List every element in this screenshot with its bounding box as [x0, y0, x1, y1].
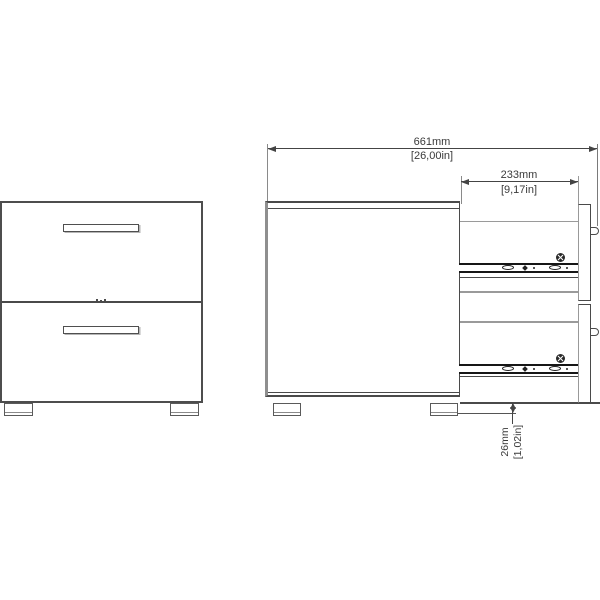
bottom-drawer-handle	[63, 326, 139, 334]
dim-label-drawer-extension-in: [9,17in]	[479, 184, 559, 196]
front-left-foot	[4, 403, 33, 416]
top-drawer-underside-line	[460, 291, 578, 293]
arrowhead-left	[268, 146, 276, 152]
dim-label-total-depth-mm: 661mm	[392, 136, 472, 148]
bottom-drawer-box-top-line	[460, 321, 578, 323]
front-right-foot	[170, 403, 199, 416]
rail-dot	[566, 368, 568, 370]
bottom-drawer-slide-rail	[459, 364, 589, 374]
rail-arrow-mark	[522, 265, 528, 271]
top-drawer-front-panel	[578, 204, 591, 301]
extension-line	[578, 176, 579, 204]
arrowhead-right	[589, 146, 597, 152]
divider-mark	[104, 299, 106, 301]
screw-head-icon	[556, 354, 565, 363]
divider-mark	[96, 299, 98, 301]
dimension-line	[461, 181, 578, 182]
bottom-drawer-knob	[590, 328, 599, 336]
top-drawer-knob	[590, 227, 599, 235]
extension-line	[597, 144, 598, 226]
dim-label-total-depth-in: [26,00in]	[392, 150, 472, 162]
bottom-drawer-box-bottom-line	[460, 376, 578, 377]
arrowhead-right	[570, 179, 578, 185]
side-top-panel-line	[268, 208, 460, 209]
divider-mark	[100, 300, 102, 302]
rail-dot	[533, 267, 535, 269]
side-right-foot	[430, 403, 458, 416]
dim-label-floor-clearance-mm: 26mm	[499, 417, 512, 467]
arrowhead-down	[510, 407, 516, 413]
rail-slot	[549, 366, 561, 371]
top-drawer-box-top-line	[460, 221, 578, 222]
screw-head-icon	[556, 253, 565, 262]
dim-label-floor-clearance-in: [1,02in]	[512, 417, 525, 467]
rail-arrow-mark	[522, 366, 528, 372]
rail-slot	[502, 265, 514, 270]
top-drawer-handle	[63, 224, 139, 232]
top-drawer-box-bottom-line	[460, 277, 578, 278]
rail-dot	[566, 267, 568, 269]
extension-line	[267, 144, 268, 201]
rail-slot	[549, 265, 561, 270]
side-bottom-panel-line	[268, 392, 460, 393]
dim-label-floor-clearance: 26mm [1,02in]	[499, 417, 525, 467]
bottom-drawer-front-panel	[578, 304, 591, 403]
side-view-body	[265, 201, 460, 397]
dimension-line	[268, 148, 597, 149]
arrowhead-left	[461, 179, 469, 185]
technical-drawing: 661mm [26,00in] 233mm [9,17in] 26mm [1,0…	[0, 0, 600, 600]
top-drawer-slide-rail	[459, 263, 589, 273]
side-left-foot	[273, 403, 301, 416]
rail-slot	[502, 366, 514, 371]
rail-dot	[533, 368, 535, 370]
dim-label-drawer-extension-mm: 233mm	[479, 169, 559, 181]
floor-reference-line	[458, 413, 516, 414]
